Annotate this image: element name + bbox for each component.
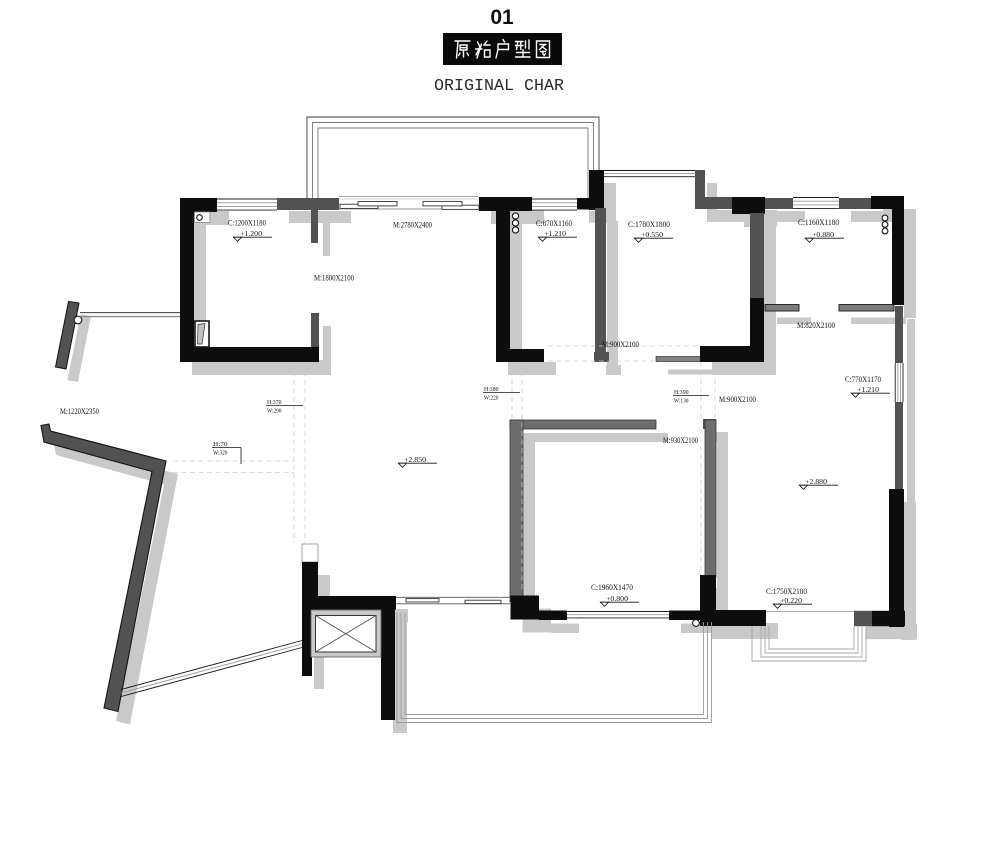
svg-text:W:290: W:290 bbox=[267, 408, 282, 415]
svg-text:H:390: H:390 bbox=[674, 389, 689, 396]
svg-text:W:320: W:320 bbox=[213, 450, 228, 457]
svg-text:M:1220X2350: M:1220X2350 bbox=[60, 407, 99, 416]
svg-text:C:1160X1180: C:1160X1180 bbox=[798, 218, 839, 227]
svg-text:H:70: H:70 bbox=[213, 441, 228, 448]
svg-text:01: 01 bbox=[490, 6, 514, 29]
svg-text:+0.220: +0.220 bbox=[780, 596, 802, 605]
svg-text:H:380: H:380 bbox=[484, 386, 499, 393]
svg-text:C:1200X1180: C:1200X1180 bbox=[228, 219, 266, 228]
svg-text:+0.800: +0.800 bbox=[606, 594, 628, 603]
svg-text:W:220: W:220 bbox=[484, 395, 499, 402]
svg-text:M:2780X2400: M:2780X2400 bbox=[393, 221, 432, 230]
svg-text:C:1780X1800: C:1780X1800 bbox=[628, 220, 670, 229]
svg-text:C:1960X1470: C:1960X1470 bbox=[591, 583, 633, 592]
svg-text:+1.210: +1.210 bbox=[544, 229, 566, 238]
svg-text:C:770X1170: C:770X1170 bbox=[845, 375, 881, 384]
svg-text:M:1800X2100: M:1800X2100 bbox=[314, 274, 354, 283]
svg-text:ORIGINAL CHAR: ORIGINAL CHAR bbox=[434, 76, 564, 95]
svg-text:M:820X2100: M:820X2100 bbox=[797, 321, 835, 330]
svg-text:+2.850: +2.850 bbox=[404, 455, 426, 464]
svg-text:+2.880: +2.880 bbox=[805, 477, 827, 486]
svg-text:+1.210: +1.210 bbox=[857, 385, 879, 394]
svg-text:C:870X1160: C:870X1160 bbox=[536, 219, 572, 228]
svg-text:+0.550: +0.550 bbox=[641, 230, 663, 239]
svg-text:M:900X2100: M:900X2100 bbox=[602, 340, 639, 349]
svg-text:+1.200: +1.200 bbox=[240, 229, 262, 238]
svg-text:+0.880: +0.880 bbox=[812, 230, 834, 239]
svg-text:W:130: W:130 bbox=[674, 398, 689, 405]
svg-text:M:900X2100: M:900X2100 bbox=[719, 395, 756, 404]
svg-text:M:930X2100: M:930X2100 bbox=[663, 436, 698, 445]
svg-text:H:370: H:370 bbox=[267, 399, 282, 406]
svg-text:C:1750X2180: C:1750X2180 bbox=[766, 587, 807, 596]
